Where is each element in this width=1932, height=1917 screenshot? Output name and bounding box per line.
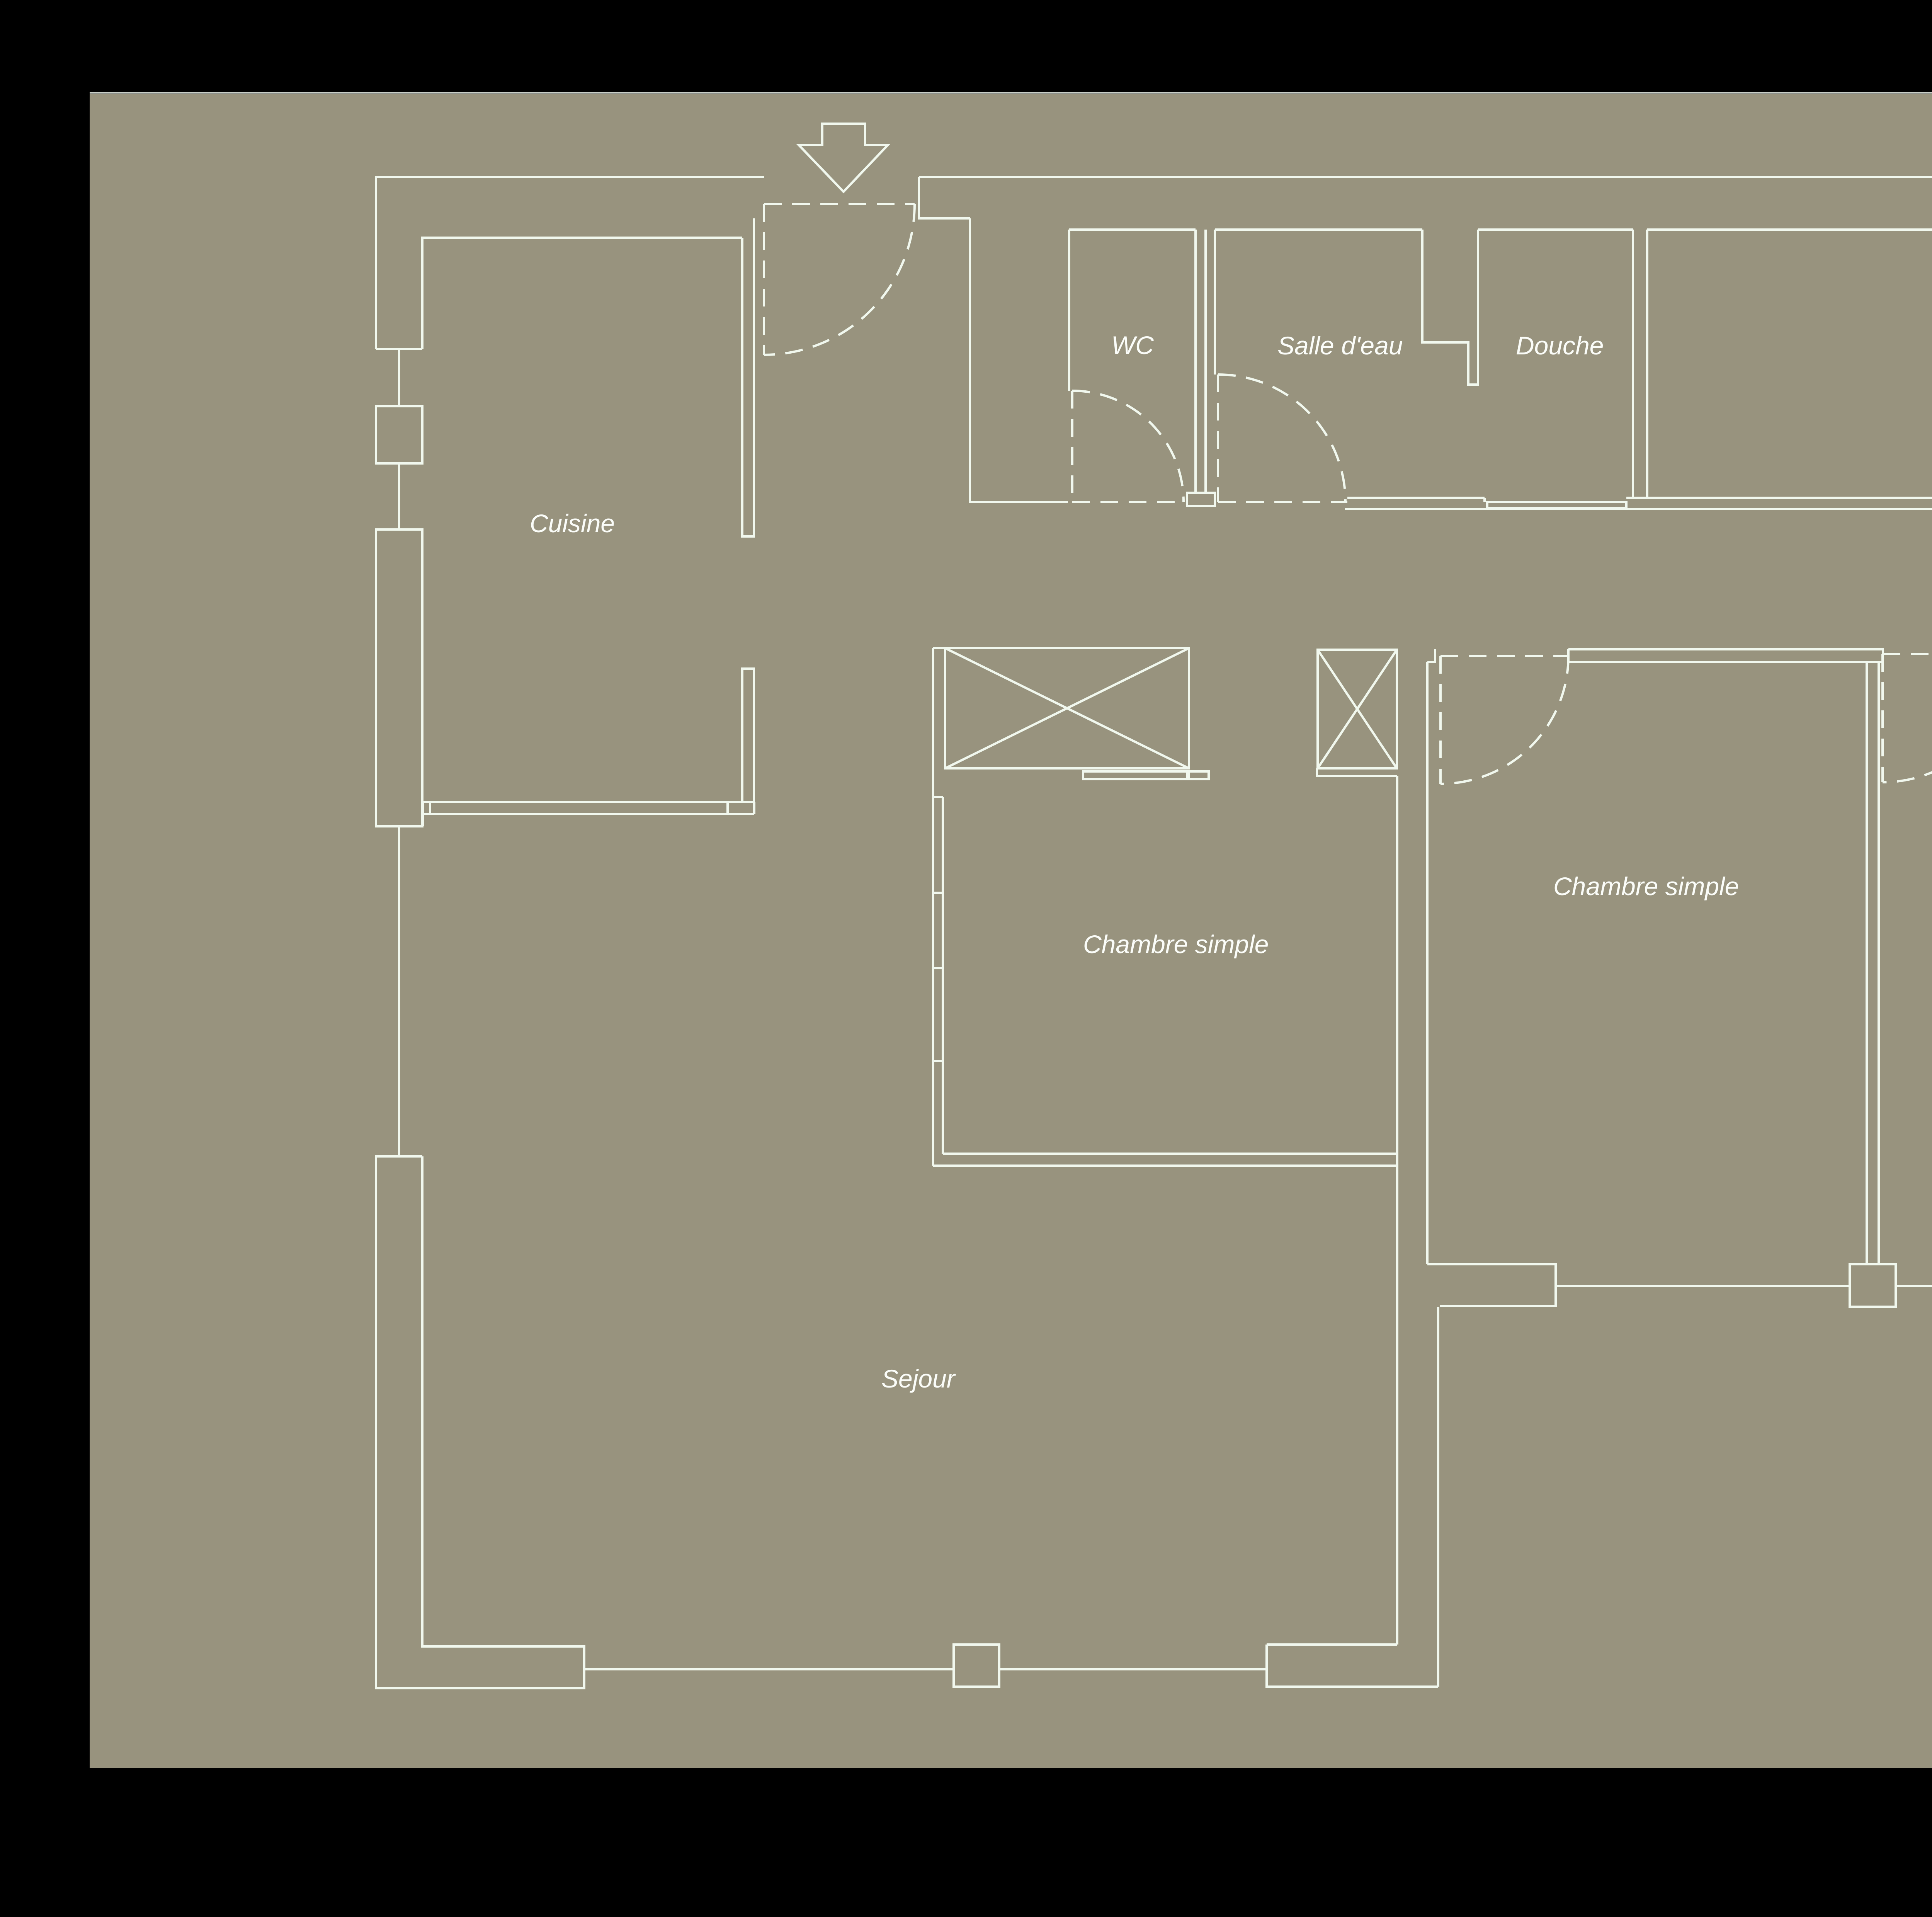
svg-text:WC: WC xyxy=(1111,331,1154,359)
svg-text:Cuisine: Cuisine xyxy=(530,509,615,538)
svg-text:Chambre simple: Chambre simple xyxy=(1553,872,1739,901)
svg-text:Chambre simple: Chambre simple xyxy=(1083,930,1269,958)
svg-text:Salle d'eau: Salle d'eau xyxy=(1277,331,1403,360)
svg-text:Douche: Douche xyxy=(1516,331,1604,360)
svg-text:Sejour: Sejour xyxy=(881,1364,956,1393)
